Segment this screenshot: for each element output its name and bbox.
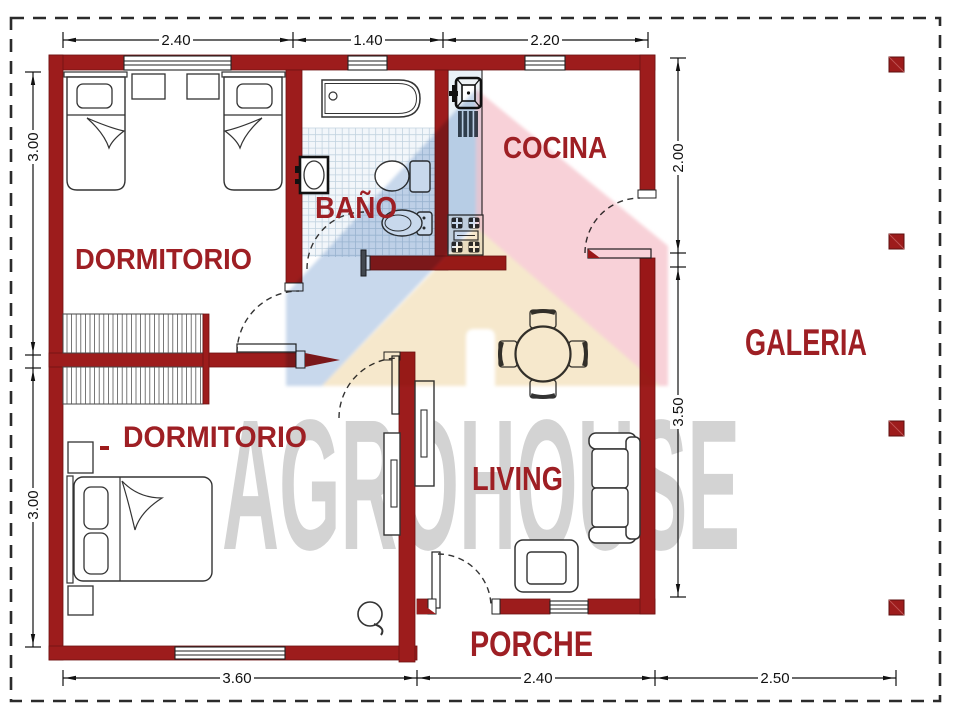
svg-text:2.20: 2.20 <box>530 32 559 49</box>
svg-text:COCINA: COCINA <box>503 130 607 165</box>
svg-text:GALERIA: GALERIA <box>745 322 867 363</box>
svg-text:1.40: 1.40 <box>353 32 382 49</box>
svg-text:3.60: 3.60 <box>222 670 251 687</box>
svg-text:2.50: 2.50 <box>760 670 789 687</box>
svg-text:3.00: 3.00 <box>25 132 42 161</box>
svg-text:BAÑO: BAÑO <box>315 190 397 225</box>
svg-text:3.00: 3.00 <box>25 490 42 519</box>
svg-text:2.00: 2.00 <box>670 143 687 172</box>
svg-text:LIVING: LIVING <box>472 460 563 497</box>
svg-text:DORMITORIO: DORMITORIO <box>75 244 252 276</box>
svg-text:PORCHE: PORCHE <box>470 625 593 664</box>
svg-text:2.40: 2.40 <box>523 670 552 687</box>
svg-text:DORMITORIO: DORMITORIO <box>123 421 307 454</box>
svg-text:3.50: 3.50 <box>670 397 687 426</box>
svg-text:2.40: 2.40 <box>161 32 190 49</box>
